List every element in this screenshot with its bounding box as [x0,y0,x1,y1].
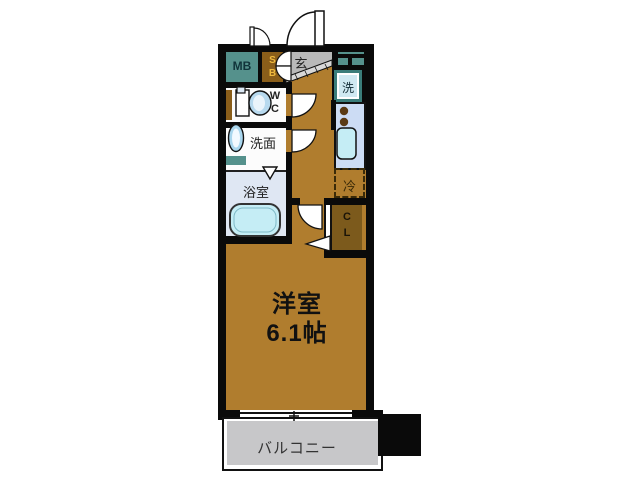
shoe-box-label-line1: S [262,54,283,67]
closet-label-line2: L [332,225,362,241]
closet-label-line1: C [332,209,362,225]
toilet-label: W C [264,90,286,116]
washroom-door-swing-icon [292,130,316,152]
bathroom-folding-door-icon [263,167,277,179]
shoe-box-label: S B [262,54,283,80]
window-latch-icon [289,411,299,421]
toilet-label-line1: W [264,90,286,103]
entrance-label: 玄 [290,53,312,72]
main-room-label: 洋室 6.1帖 [247,290,347,348]
fixtures-overlay [0,0,640,480]
kitchen-sink-icon [337,128,356,159]
toilet-door-swing-icon [292,94,316,117]
bathtub-icon [230,204,280,236]
closet-door-icon [306,236,330,251]
shoe-box-label-line2: B [262,67,283,80]
balcony-label: バルコニー [247,437,347,458]
stove-burners-icon [340,107,348,126]
meterbox-door-icon [250,27,270,46]
meter-box-label: MB [226,59,258,73]
floorplan-canvas: MB S B 玄 洗 W C 洗面 浴室 冷 C L 洋室 6.1帖 バルコニー [0,0,640,480]
closet-label: C L [332,209,362,241]
washroom-label: 洗面 [240,133,286,152]
washer-label: 洗 [334,79,362,96]
main-room-size: 6.1帖 [247,319,347,348]
bathroom-label: 浴室 [231,182,281,201]
toilet-label-line2: C [264,103,286,116]
entrance-door-icon [287,11,324,46]
main-room-door-swing-icon [298,205,322,229]
main-room-name: 洋室 [247,290,347,319]
refrigerator-label: 冷 [334,176,365,195]
